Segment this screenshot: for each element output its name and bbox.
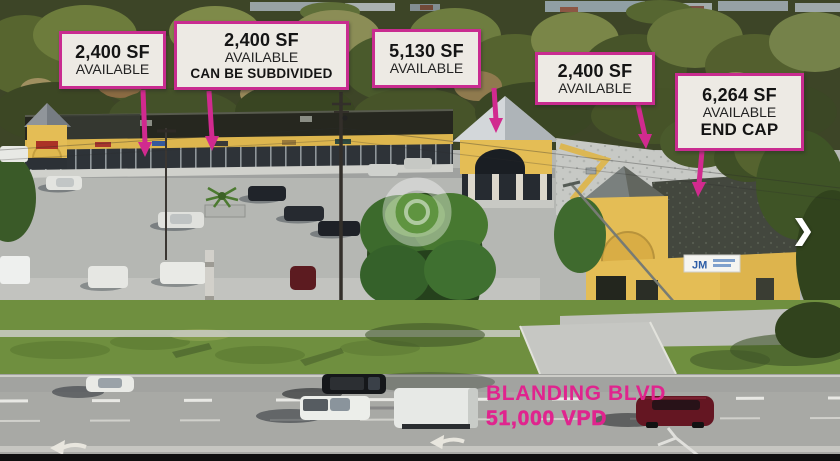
next-arrow-icon[interactable]: ❯ [789,214,817,246]
callout-availability: AVAILABLE [390,61,463,77]
traffic-count: 51,000 VPD [486,408,666,430]
callout-availability: AVAILABLE [558,81,631,97]
road-label: BLANDING BLVD 51,000 VPD [486,383,666,430]
callout-5130sf: 5,130 SF AVAILABLE [372,29,481,88]
callout-availability: AVAILABLE [225,50,298,66]
callout-note: CAN BE SUBDIVIDED [190,66,332,81]
callout-2400sf-2: 2,400 SF AVAILABLE [535,52,655,105]
callout-availability: AVAILABLE [76,62,149,78]
callout-size: 2,400 SF [558,61,633,81]
box-trailer [394,388,478,429]
callout-2400sf-subdividable: 2,400 SF AVAILABLE CAN BE SUBDIVIDED [174,21,349,90]
grass-verge [0,300,840,374]
callout-availability: AVAILABLE [703,105,776,121]
road [0,372,840,457]
aerial-listing-photo: JM [0,0,840,461]
wall-sign: JM [684,255,740,272]
callout-size: 2,400 SF [75,42,150,62]
callout-size: 6,264 SF [702,85,777,105]
callout-2400sf-1: 2,400 SF AVAILABLE [59,31,166,89]
street-name: BLANDING BLVD [486,383,666,405]
wall-sign-text: JM [692,260,707,272]
callout-size: 2,400 SF [224,30,299,50]
photo-bottom-edge [0,454,840,461]
callout-size: 5,130 SF [389,41,464,61]
callout-6264sf-endcap: 6,264 SF AVAILABLE END CAP [675,73,804,151]
callout-note: END CAP [701,120,779,139]
